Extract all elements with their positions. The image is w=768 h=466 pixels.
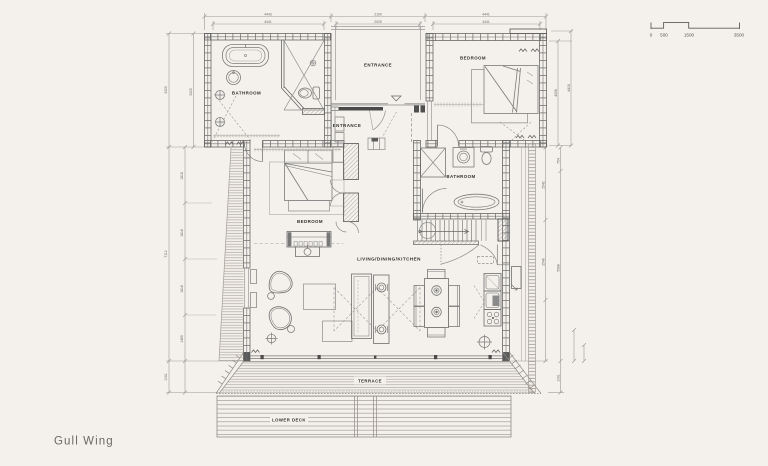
svg-text:Gull Wing: Gull Wing [54,436,114,448]
svg-text:1465: 1465 [180,335,184,343]
svg-text:4441: 4441 [482,20,490,24]
svg-text:1061: 1061 [164,373,168,381]
svg-text:0: 0 [650,33,653,38]
svg-text:BATHROOM: BATHROOM [446,174,475,179]
svg-text:1818: 1818 [180,172,184,180]
svg-text:1818: 1818 [180,229,184,237]
svg-text:3500: 3500 [734,33,745,38]
svg-text:3325: 3325 [189,88,193,96]
svg-text:1818: 1818 [180,285,184,293]
svg-text:7112: 7112 [164,250,168,257]
svg-text:2546: 2546 [542,258,546,266]
svg-text:754: 754 [557,158,561,164]
svg-text:2542: 2542 [542,181,546,189]
svg-text:LOWER DECK: LOWER DECK [272,417,306,422]
svg-text:1061: 1061 [557,374,561,382]
svg-text:4441: 4441 [482,12,490,16]
svg-text:ENTRANCE: ENTRANCE [364,63,392,68]
svg-text:1500: 1500 [684,33,695,38]
svg-text:LIVING/DINING/KITCHEN: LIVING/DINING/KITCHEN [357,257,421,262]
svg-text:2025: 2025 [374,20,382,24]
svg-text:5588: 5588 [557,264,561,272]
svg-text:BEDROOM: BEDROOM [297,219,323,224]
svg-text:4443: 4443 [264,12,272,16]
svg-text:BEDROOM: BEDROOM [460,56,486,61]
svg-text:ENTRANCE: ENTRANCE [333,123,362,128]
svg-text:3325: 3325 [164,86,168,94]
svg-text:2100: 2100 [374,12,382,16]
svg-text:4441: 4441 [264,20,272,24]
svg-text:4358: 4358 [554,89,558,97]
svg-text:4408: 4408 [567,84,571,92]
svg-text:500: 500 [660,33,668,38]
svg-text:BATHROOM: BATHROOM [232,90,261,95]
svg-text:TERRACE: TERRACE [358,379,382,384]
